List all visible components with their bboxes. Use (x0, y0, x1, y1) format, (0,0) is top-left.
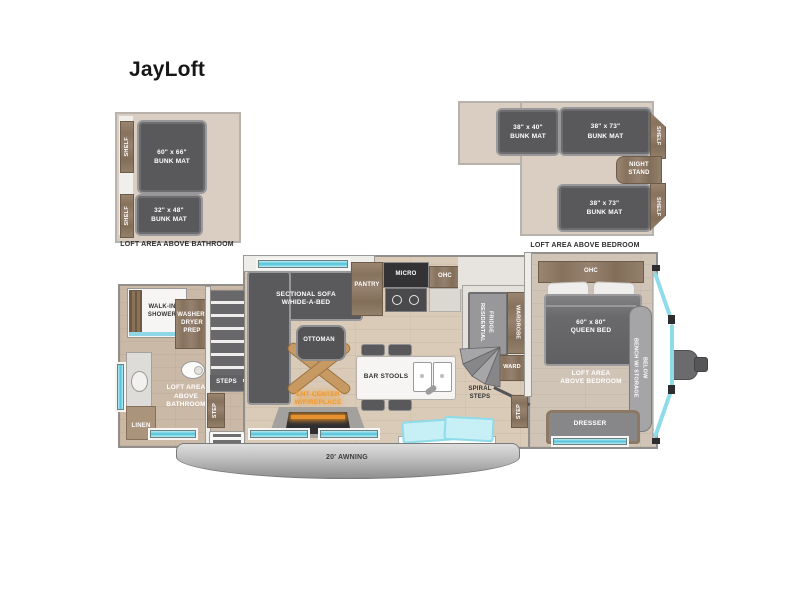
shelf-top-right: SHELF (650, 112, 666, 159)
microwave: MICRO (383, 262, 429, 288)
shelf-top: SHELF (120, 121, 134, 173)
kitchen-counter (429, 288, 461, 312)
loft-above-bedroom-inset: 38" x 40" BUNK MAT 38" x 73" BUNK MAT 38… (458, 99, 672, 239)
steps-label: STEPS (209, 376, 244, 389)
page-title: JayLoft (129, 58, 205, 82)
awning-label: 20' AWNING (177, 450, 517, 466)
bedroom-wall (524, 252, 532, 397)
bunk-mat-60x66: 60" x 66" BUNK MAT (137, 120, 207, 194)
jayloft-floorplan: JayLoft SHELF SHELF 60" x 66" BUNK MAT 3… (0, 0, 800, 600)
cooktop (385, 288, 427, 312)
loft-above-bathroom-inset: SHELF SHELF 60" x 66" BUNK MAT 32" x 48"… (115, 112, 241, 243)
drain (440, 374, 444, 378)
kitchen-ohc: OHC (429, 266, 461, 288)
queen-bed: 60" x 80" QUEEN BED (544, 294, 642, 366)
bed-fold-line (546, 305, 636, 307)
toilet (181, 361, 205, 379)
fridge-label: RESIDENTIAL FRIDGE (470, 294, 502, 350)
fireplace-flame (291, 415, 345, 419)
step-right-label: STEP (512, 396, 527, 427)
kitchen-ohc-label: OHC (430, 267, 460, 287)
shelf-top-right-label: SHELF (655, 126, 661, 146)
step-box-left: STEP (207, 393, 225, 428)
shelf-bottom: SHELF (120, 194, 134, 238)
bedroom-window (553, 438, 627, 445)
drain (420, 374, 424, 378)
ent-center-label: ENT CENTER W/FIREPLACE (270, 390, 366, 408)
living-window-1 (250, 430, 308, 438)
night-stand: NIGHT STAND (616, 156, 662, 184)
queen-bed-label: 60" x 80" QUEEN BED (546, 316, 636, 338)
loft-above-bedroom-caption: LOFT AREA ABOVE BEDROOM (505, 242, 665, 249)
burner (392, 295, 402, 305)
shelf-bottom-right: SHELF (650, 183, 666, 231)
shelf-top-label: SHELF (124, 137, 130, 157)
bunk-mat-38x73-bottom: 38" x 73" BUNK MAT (557, 184, 652, 232)
bar-stools-label: BAR STOOLS (359, 370, 413, 384)
bar-stool (361, 344, 385, 356)
living-window-2 (320, 430, 378, 438)
washer-dryer-prep: WASHER/ DRYER PREP (175, 299, 209, 349)
bunk-mat-32x48: 32" x 48" BUNK MAT (135, 194, 203, 236)
shelf-bottom-right-label: SHELF (655, 197, 661, 217)
bar-stool (388, 399, 412, 411)
pantry-label: PANTRY (349, 279, 385, 293)
bathroom-window (150, 430, 196, 438)
pantry: PANTRY (351, 262, 383, 316)
bar-stool (361, 399, 385, 411)
bedroom-ohc-label: OHC (539, 262, 643, 282)
ottoman: OTTOMAN (296, 325, 346, 361)
bunk-mat-38x40: 38" x 40" BUNK MAT (496, 108, 560, 156)
burner (409, 295, 419, 305)
entry-step-mat-2 (443, 416, 494, 443)
step-box-right: STEP (511, 395, 528, 428)
bunk-mat-38x73-top: 38" x 73" BUNK MAT (559, 107, 652, 156)
kitchen-island: BAR STOOLS (356, 356, 456, 400)
hitch-coupler (694, 357, 708, 372)
front-cap (652, 263, 676, 447)
step-tread (213, 434, 241, 437)
awning: 20' AWNING (176, 443, 520, 479)
sofa-slideout-window (258, 260, 348, 268)
micro-label: MICRO (384, 263, 428, 287)
ottoman-label: OTTOMAN (298, 327, 340, 355)
bar-stool (388, 344, 412, 356)
toilet-seat (194, 366, 203, 375)
shelf-bottom-label: SHELF (124, 206, 130, 226)
sectional-sofa-label: SECTIONAL SOFA W/HIDE-A-BED (255, 288, 357, 310)
spiral-steps (455, 345, 503, 389)
loft-above-bathroom-caption: LOFT AREA ABOVE BATHROOM (107, 241, 247, 248)
bedroom-ohc: OHC (538, 261, 644, 283)
bathroom-sink (131, 371, 148, 392)
dresser-label: DRESSER (549, 413, 631, 435)
step-left-label: STEP (208, 394, 224, 427)
washer-dryer-prep-label: WASHER/ DRYER PREP (176, 300, 208, 348)
loft-above-bedroom-label: LOFT AREA ABOVE BEDROOM (547, 367, 635, 389)
bathroom-side-window (117, 364, 124, 410)
